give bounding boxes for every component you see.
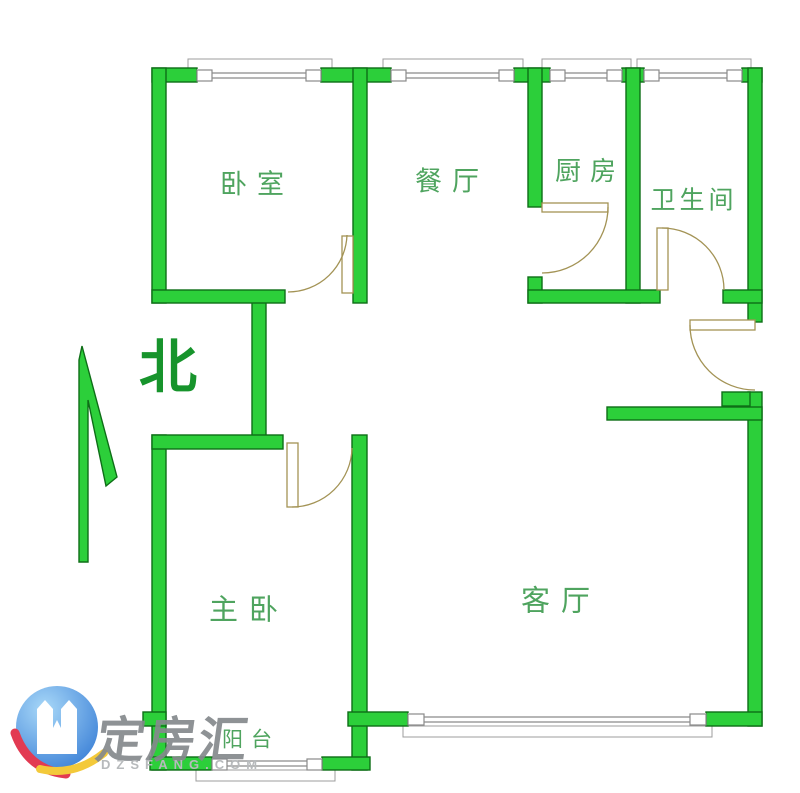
door-bathroom	[657, 228, 724, 290]
floorplan-canvas: 卧室 餐厅 厨房 卫生间 主卧 客厅 阳台 北 定房汇 DZSFANG.COM	[0, 0, 800, 793]
window-bedroom	[197, 69, 321, 81]
window-living	[408, 713, 706, 725]
north-arrow-icon	[79, 346, 117, 562]
north-label: 北	[139, 339, 197, 397]
room-label-bedroom: 卧室	[220, 172, 294, 199]
door-bedroom	[288, 235, 353, 293]
brand-logo-icon	[15, 686, 104, 774]
door-kitchen	[542, 203, 608, 273]
room-label-kitchen: 厨房	[555, 158, 625, 184]
window-dining	[391, 69, 514, 81]
room-label-master-bedroom: 主卧	[209, 597, 289, 626]
window-kitchen	[550, 69, 622, 81]
door-entry	[690, 320, 755, 390]
watermark-domain-text: DZSFANG.COM	[101, 757, 263, 772]
window-bathroom	[644, 69, 742, 81]
door-master-bedroom	[287, 443, 352, 507]
floorplan-drawing	[0, 0, 800, 793]
room-label-dining-room: 餐厅	[415, 169, 489, 196]
room-label-bathroom: 卫生间	[650, 189, 737, 214]
room-label-living-room: 客厅	[521, 588, 601, 617]
